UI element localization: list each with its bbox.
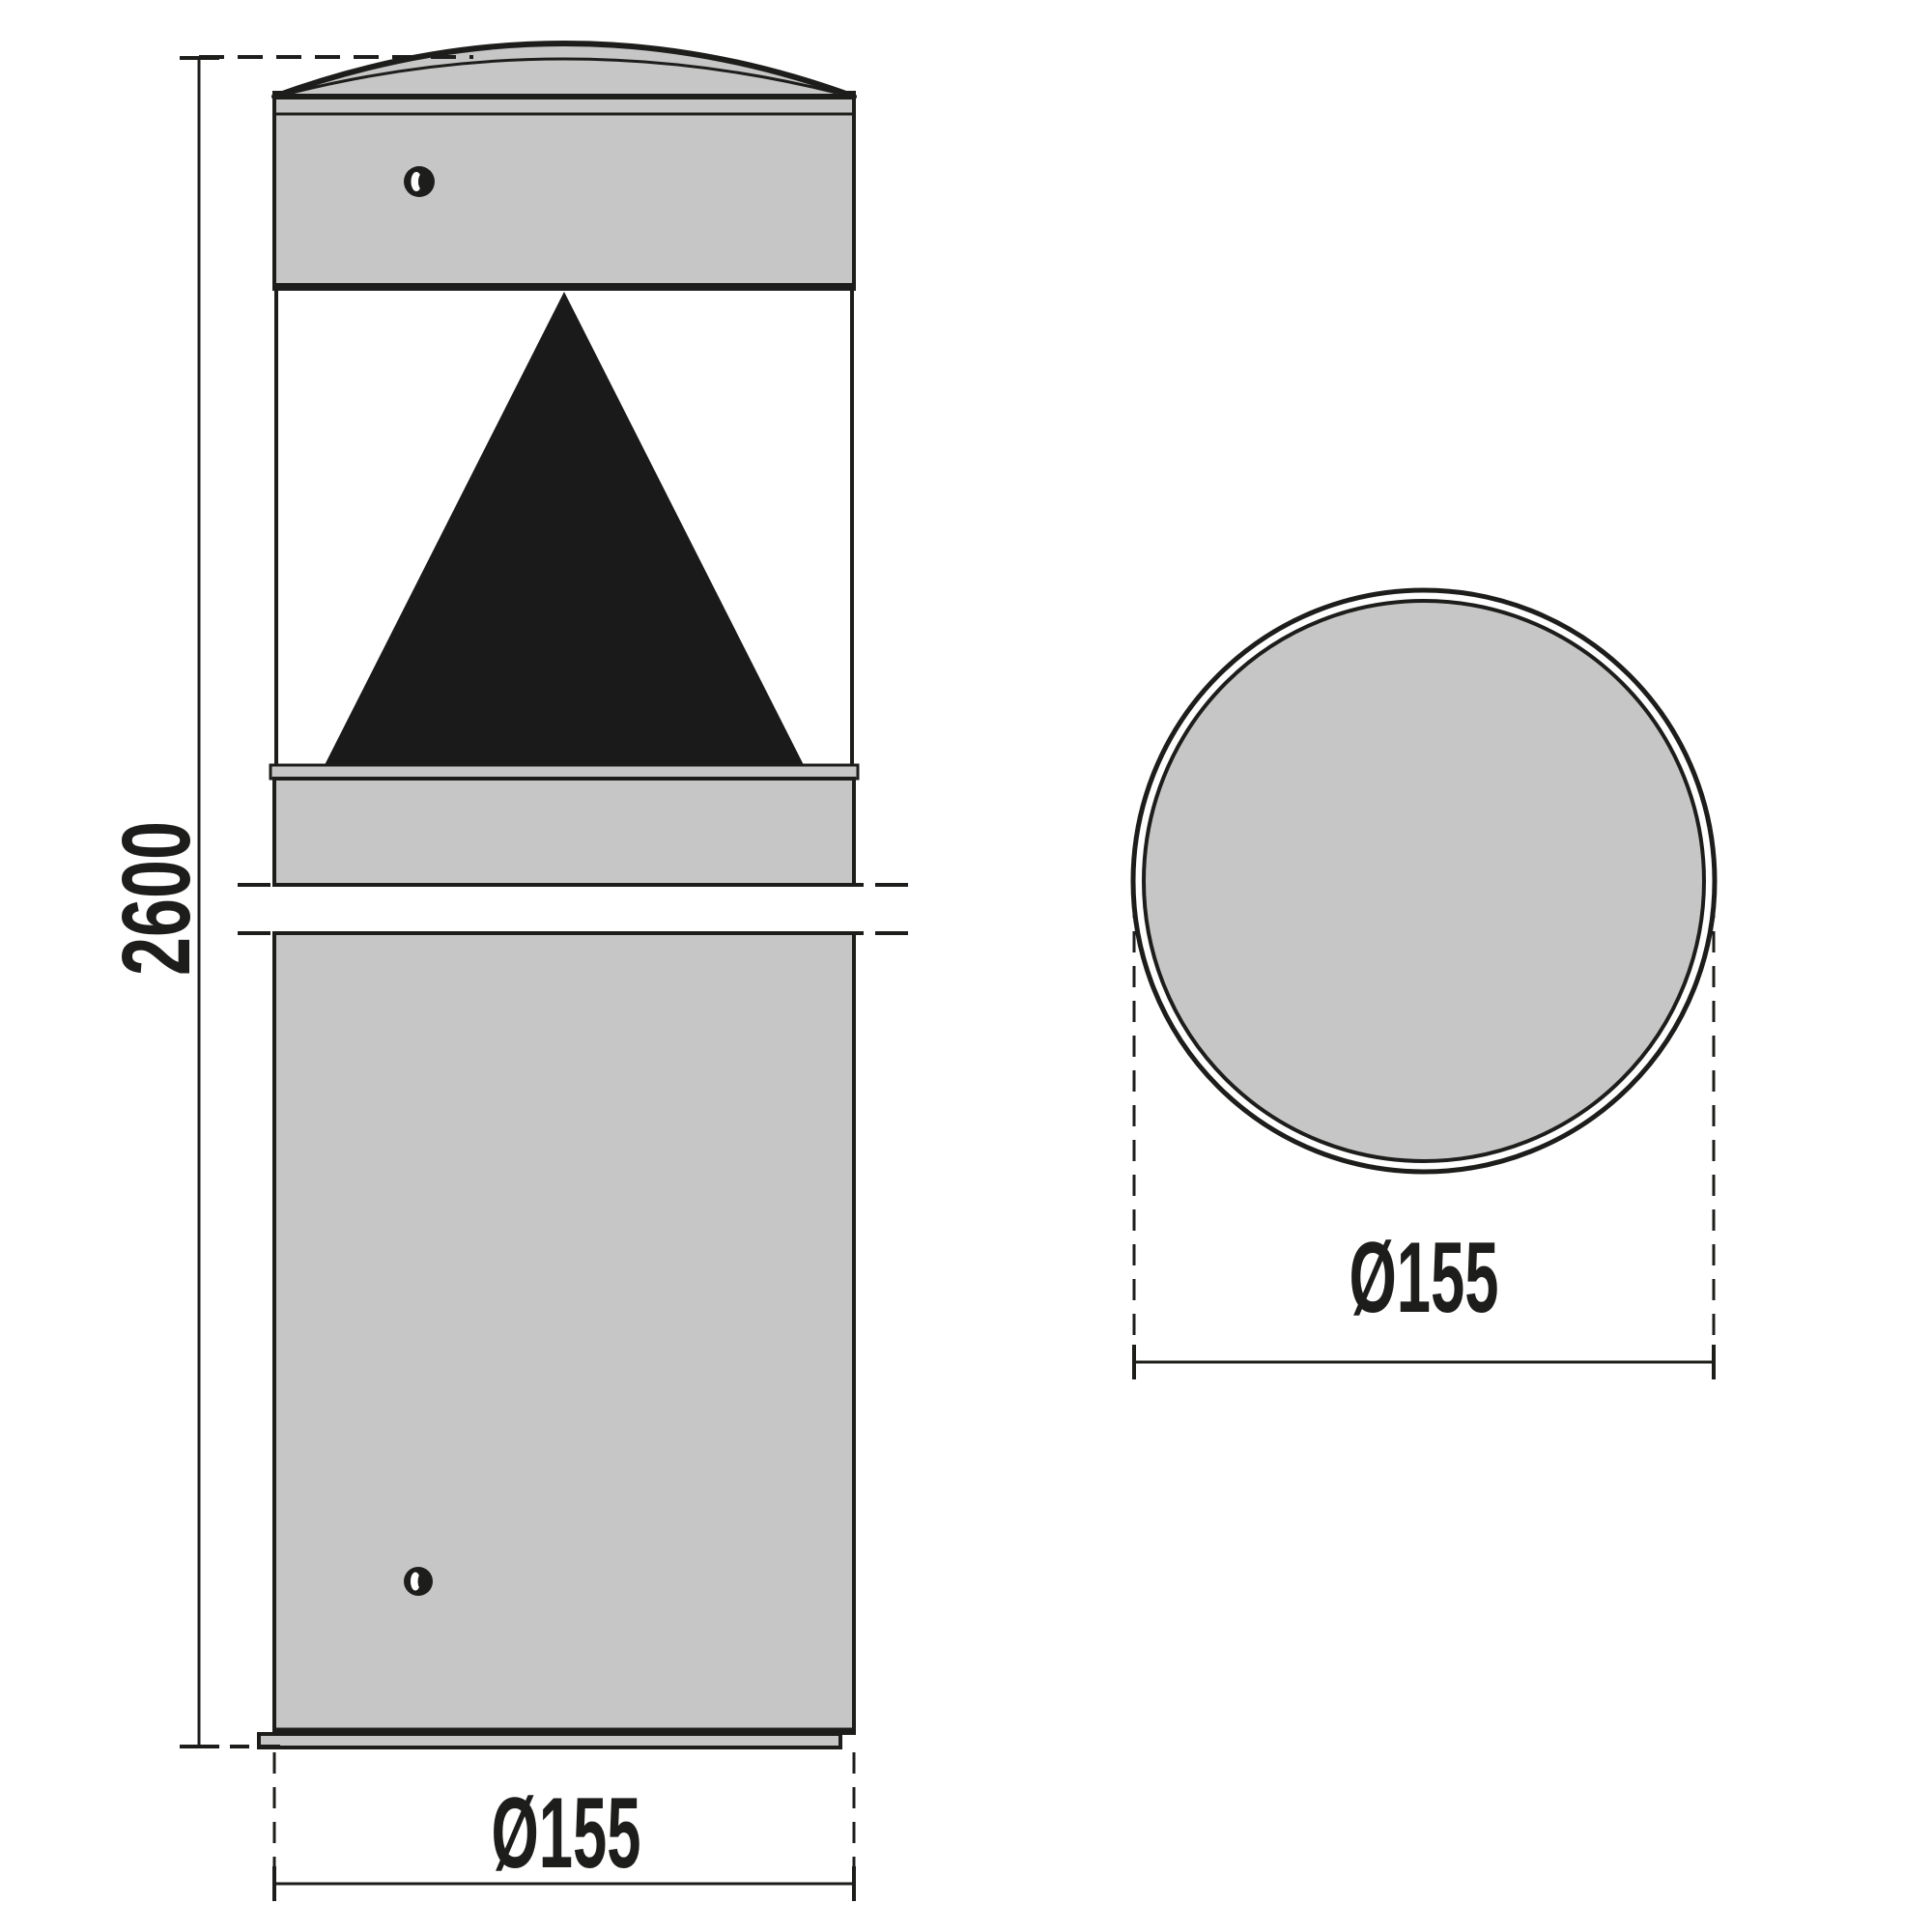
trim-ring: [270, 765, 858, 779]
base-screw-icon: [404, 1567, 433, 1596]
bollard-dimension-drawing: 2600 Ø155 Ø155: [0, 0, 1932, 1932]
upper-shaft: [274, 779, 854, 885]
top-diameter-label: Ø155: [1350, 1222, 1499, 1334]
cap-screw-icon: [404, 166, 435, 197]
cap-screw-slot: [418, 173, 428, 190]
front-view: [238, 43, 908, 1747]
drawing-canvas: 2600 Ø155 Ø155: [0, 0, 1932, 1932]
top-view: [1133, 590, 1715, 1172]
top-view-inner-ring: [1144, 601, 1704, 1161]
cap-face: [274, 93, 854, 286]
base-plate: [259, 1734, 840, 1747]
lower-shaft: [274, 933, 854, 1733]
light-cone-triangle: [325, 292, 804, 765]
height-dim-label: 2600: [102, 821, 211, 976]
cap-dome: [274, 43, 854, 97]
front-diameter-label: Ø155: [492, 1777, 641, 1889]
base-screw-slot: [418, 1574, 427, 1590]
